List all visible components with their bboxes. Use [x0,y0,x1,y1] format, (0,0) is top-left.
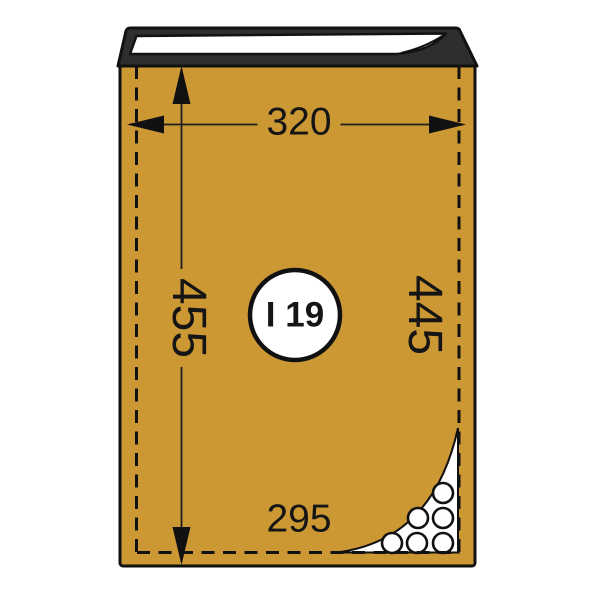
liner-strip [130,34,446,55]
dim-top-label: 320 [257,103,340,144]
dim-bottom-label: 295 [266,500,331,541]
bubble-icon [433,483,453,503]
bubble-icon [433,508,453,528]
envelope-size-diagram: 320 455 445 295 I 19 [0,0,600,600]
bubble-icon [433,533,453,553]
bubble-icon [407,533,427,553]
dim-right-label: 445 [399,275,449,355]
size-badge-label: I 19 [266,298,324,335]
dim-left-label: 455 [163,269,213,367]
bubble-icon [408,508,428,528]
bubble-icon [382,533,402,553]
